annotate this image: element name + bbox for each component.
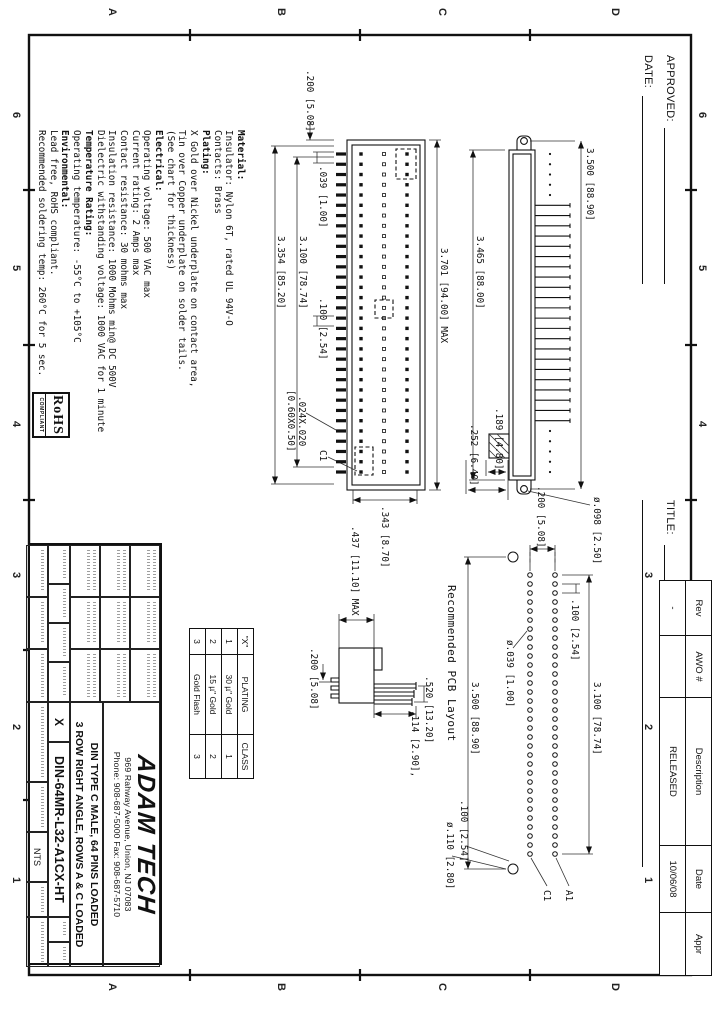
- tolerance-cell: [100, 545, 130, 597]
- pin-row-c: [359, 450, 362, 453]
- pin-row-a: [405, 347, 408, 350]
- spec-note-line: Tin over Copper underplate on solder tai…: [176, 130, 188, 450]
- pin-row-b-unloaded: [383, 450, 386, 453]
- pin-row-a: [405, 378, 408, 381]
- pin-row-b-unloaded: [383, 286, 386, 289]
- pcb-hole-row-c: [528, 735, 533, 740]
- illegible-text: [87, 550, 90, 592]
- tolerance-cell: [130, 597, 160, 649]
- scanned-drawing-page: 3.500 [88.90]3.465 [88.00].189 [4.80].25…: [0, 0, 720, 1012]
- tail-dot: [549, 430, 551, 432]
- dim-label: .343 [8.70]: [379, 506, 390, 568]
- illegible-text: [63, 922, 66, 937]
- pin-row-a: [405, 286, 408, 289]
- solder-tail: [336, 224, 346, 227]
- solder-tail: [336, 358, 346, 361]
- solder-tail: [336, 173, 346, 176]
- pin-row-c: [359, 368, 362, 371]
- dim-label: .437 [11.10] MAX: [349, 526, 360, 616]
- illegible-text: [63, 589, 66, 618]
- zone-label: B: [275, 983, 287, 991]
- zone-label: A: [106, 8, 118, 16]
- pcb-hole-row-a: [553, 798, 558, 803]
- company-phone: Phone: 908-687-5000 Fax: 908-687-5710: [112, 703, 123, 966]
- pin-row-a: [405, 214, 408, 217]
- pcb-hole-row-a: [553, 645, 558, 650]
- solder-tail: [336, 470, 346, 473]
- pcb-hole-row-a: [553, 726, 558, 731]
- pcb-hole-row-a: [553, 825, 558, 830]
- pin-row-a: [405, 265, 408, 268]
- title-line-2: [642, 500, 643, 867]
- tolerance-cell: [70, 597, 100, 649]
- pcb-hole-row-c: [528, 753, 533, 758]
- pcb-hole-row-c: [528, 573, 533, 578]
- pcb-hole-row-c: [528, 825, 533, 830]
- pin-row-a: [405, 419, 408, 422]
- pcb-hole-row-a: [553, 663, 558, 668]
- pcb-hole-row-a: [553, 816, 558, 821]
- small-cell: [26, 782, 48, 832]
- pcb-hole-row-c: [528, 771, 533, 776]
- pin-row-c: [359, 152, 362, 155]
- table-cell: -: [660, 581, 686, 636]
- sign-cell: [48, 545, 70, 584]
- revision-table: RevAWO #DescriptionDateAppr-RELEASED10/0…: [659, 580, 712, 976]
- pcb-layout-caption: Recommended PCB Layout: [445, 585, 458, 742]
- description-cell: DIN TYPE C MALE, 64 PINS LOADED 3 ROW RI…: [70, 702, 103, 967]
- illegible-text: [93, 602, 96, 644]
- dim-label: .252 [6.40]: [468, 424, 479, 486]
- zone-label: 3: [642, 572, 654, 578]
- pin-row-c: [359, 255, 362, 258]
- tail-dot: [549, 450, 551, 452]
- table-header-cell: CLASS: [238, 735, 254, 779]
- zone-label: 4: [696, 421, 708, 427]
- tail-dot: [549, 153, 551, 155]
- dim-label: 3.500 [88.90]: [469, 682, 480, 755]
- illegible-text: [117, 602, 120, 644]
- rohs-compliant-logo: RoHS COMPLIANT: [32, 392, 70, 438]
- dim-label: [0.60X0.50]: [285, 390, 296, 452]
- pin-row-c: [359, 429, 362, 432]
- table-header-cell: PLATING: [238, 655, 254, 735]
- pcb-hole-row-a: [553, 753, 558, 758]
- pin-row-b-unloaded: [383, 235, 386, 238]
- table-cell: Gold Flash: [190, 655, 206, 735]
- tail-dot: [549, 173, 551, 175]
- solder-tail: [336, 183, 346, 186]
- pin-row-a: [405, 275, 408, 278]
- illegible-text: [153, 602, 156, 644]
- table-cell: 1: [222, 735, 238, 779]
- spec-note-line: Dielectric withstanding voltage: 1000 VA…: [94, 130, 106, 450]
- sign-cell: [26, 597, 48, 649]
- pin-row-b-unloaded: [383, 245, 386, 248]
- pcb-hole-row-a: [553, 852, 558, 857]
- pin-row-b-unloaded: [383, 153, 386, 156]
- table-cell: 3: [190, 629, 206, 655]
- pin-row-c: [359, 357, 362, 360]
- rohs-title: RoHS: [46, 394, 68, 436]
- illegible-text: [87, 602, 90, 644]
- pcb-hole-row-c: [528, 780, 533, 785]
- pin-row-c: [359, 296, 362, 299]
- zone-label: 6: [696, 112, 708, 118]
- illegible-text: [41, 654, 44, 697]
- pcb-hole-row-a: [553, 672, 558, 677]
- illegible-text: [63, 628, 66, 657]
- pcb-hole-row-a: [553, 771, 558, 776]
- pin-row-a: [405, 316, 408, 319]
- pin-row-b-unloaded: [383, 204, 386, 207]
- date-label: DATE:: [642, 55, 654, 88]
- pcb-hole-row-a: [553, 609, 558, 614]
- pin-row-c: [359, 398, 362, 401]
- pin-row-a: [405, 173, 408, 176]
- dim-label: .520 [13.20]: [423, 676, 434, 743]
- table-cell: 10/06/08: [660, 846, 686, 913]
- zone-label: D: [609, 8, 621, 16]
- dim-label: .100 [2.54]: [458, 800, 469, 862]
- pcb-hole-row-a: [553, 654, 558, 659]
- spec-note-line: Insulator: Nylon 6T, rated UL 94V-O: [223, 130, 235, 450]
- dim-label: 3.100 [78.74]: [297, 236, 308, 309]
- pcb-hole-row-a: [553, 735, 558, 740]
- illegible-text: [147, 550, 150, 592]
- spec-note-line: Current rating: 2 Amps max: [129, 130, 141, 450]
- pcb-hole-row-c: [528, 636, 533, 641]
- pin-row-b-unloaded: [383, 388, 386, 391]
- plating-chart: "X"PLATINGCLASS130 µ" Gold1215 µ" Gold23…: [189, 628, 254, 779]
- plating-code-cell: X: [48, 702, 70, 742]
- pin-row-c: [359, 409, 362, 412]
- pin-row-c: [359, 460, 362, 463]
- pcb-hole-row-c: [528, 744, 533, 749]
- pin-row-b-unloaded: [383, 419, 386, 422]
- illegible-text: [117, 654, 120, 697]
- pin-row-b-unloaded: [383, 409, 386, 412]
- view-front: [271, 121, 441, 504]
- pcb-hole-row-c: [528, 726, 533, 731]
- title-block: ADAM TECH 969 Rahway Avenue, Union, NJ 0…: [28, 543, 162, 965]
- solder-tail: [336, 419, 346, 422]
- pin-row-c: [359, 193, 362, 196]
- spec-note-line: Operating voltage: 500 VAC max: [141, 130, 153, 450]
- tolerance-cell: [70, 545, 100, 597]
- dim-label: .100 [2.54]: [569, 599, 580, 661]
- pin-row-b-unloaded: [383, 224, 386, 227]
- pin-row-b-unloaded: [383, 378, 386, 381]
- pin-row-c: [359, 224, 362, 227]
- pcb-hole-row-c: [528, 591, 533, 596]
- pin-row-c: [359, 214, 362, 217]
- pin-row-b-unloaded: [383, 296, 386, 299]
- dim-label: .039 [1.00]: [317, 166, 328, 228]
- zone-label: 2: [10, 724, 22, 730]
- solder-tail: [336, 234, 346, 237]
- solder-tail: [336, 255, 346, 258]
- tail-dot: [549, 163, 551, 165]
- pin-row-a: [405, 357, 408, 360]
- pin-row-c: [359, 419, 362, 422]
- dim-label: 3.100 [78.74]: [591, 682, 602, 755]
- table-header-cell: "X": [238, 629, 254, 655]
- pcb-hole-row-c: [528, 798, 533, 803]
- pcb-hole-row-c: [528, 609, 533, 614]
- pcb-hole-row-a: [553, 699, 558, 704]
- solder-tail: [336, 296, 346, 299]
- tail-dot: [549, 461, 551, 463]
- solder-tail: [336, 450, 346, 453]
- solder-tail: [336, 378, 346, 381]
- pcb-hole-row-a: [553, 789, 558, 794]
- pcb-hole-row-a: [553, 681, 558, 686]
- pcb-hole-row-c: [528, 582, 533, 587]
- solder-tail: [336, 388, 346, 391]
- illegible-text: [123, 550, 126, 592]
- pin-row-c: [359, 286, 362, 289]
- pcb-hole-row-a: [553, 582, 558, 587]
- solder-tail: [336, 409, 346, 412]
- illegible-text: [117, 550, 120, 592]
- table-cell: 2: [206, 735, 222, 779]
- pin-row-c: [359, 265, 362, 268]
- dim-label: ø.110 [2.80]: [444, 822, 455, 889]
- pin-row-b-unloaded: [383, 214, 386, 217]
- pin-row-a: [405, 450, 408, 453]
- illegible-text: [41, 550, 44, 592]
- small-cell: [48, 917, 70, 942]
- illegible-text: [63, 947, 66, 962]
- illegible-text: [153, 654, 156, 697]
- small-cell: [26, 882, 48, 917]
- solder-tail: [336, 440, 346, 443]
- table-header-cell: Description: [686, 698, 712, 846]
- dim-label: .200 [5.08]: [535, 486, 546, 548]
- illegible-text: [63, 667, 66, 697]
- pin-row-a: [405, 388, 408, 391]
- zone-label: 5: [696, 265, 708, 271]
- spec-note-line: Contacts: Brass: [211, 130, 223, 450]
- small-cell: [48, 942, 70, 967]
- zone-label: 1: [10, 877, 22, 883]
- pin-row-c: [359, 173, 362, 176]
- pcb-hole-row-a: [553, 843, 558, 848]
- table-header-cell: Date: [686, 846, 712, 913]
- pin-row-c: [359, 470, 362, 473]
- solder-tail: [336, 327, 346, 330]
- pcb-hole-row-c: [528, 717, 533, 722]
- dim-label: ø.098 [2.50]: [591, 497, 602, 564]
- small-cell: [26, 702, 48, 782]
- solder-tail: [336, 275, 346, 278]
- pin-row-a: [405, 152, 408, 155]
- tail-dot: [549, 194, 551, 196]
- pin-row-b-unloaded: [383, 183, 386, 186]
- pin-row-a: [405, 409, 408, 412]
- illegible-text: [93, 550, 96, 592]
- solder-tail: [336, 429, 346, 432]
- table-cell: 2: [206, 629, 222, 655]
- pcb-hole-row-a: [553, 618, 558, 623]
- solder-tail: [336, 152, 346, 155]
- dim-label: .114 [2.90],: [409, 710, 420, 777]
- pin-row-b-unloaded: [383, 265, 386, 268]
- dim-label: 3.465 [88.00]: [474, 236, 485, 309]
- pin-row-c: [359, 183, 362, 186]
- pin-row-c: [359, 163, 362, 166]
- small-cell: [26, 917, 48, 967]
- pcb-hole-row-c: [528, 672, 533, 677]
- illegible-text: [123, 602, 126, 644]
- pin-row-b-unloaded: [383, 327, 386, 330]
- pcb-hole-row-c: [528, 681, 533, 686]
- rohs-subtitle: COMPLIANT: [36, 394, 46, 436]
- dim-label: 3.500 [88.90]: [584, 148, 595, 221]
- pin-row-b-unloaded: [383, 173, 386, 176]
- pin-row-c: [359, 388, 362, 391]
- table-cell: 3: [190, 735, 206, 779]
- dim-label: .024X.020: [296, 396, 307, 446]
- tail-dot: [549, 440, 551, 442]
- pcb-hole-row-c: [528, 852, 533, 857]
- pin-row-a: [405, 337, 408, 340]
- pin-row-b-unloaded: [383, 255, 386, 258]
- tail-dot: [549, 184, 551, 186]
- illegible-text: [63, 550, 66, 579]
- pin-row-a: [405, 183, 408, 186]
- zone-label: 1: [642, 877, 654, 883]
- tolerance-cell: [100, 597, 130, 649]
- pin-row-b-unloaded: [383, 163, 386, 166]
- pcb-hole-row-c: [528, 708, 533, 713]
- mounting-ear-hole: [521, 486, 528, 493]
- tolerance-cell: [70, 649, 100, 702]
- table-cell: 15 µ" Gold: [206, 655, 222, 735]
- zone-label: B: [275, 8, 287, 16]
- spec-note-line: Material:: [234, 130, 246, 450]
- tolerance-cell: [100, 649, 130, 702]
- part-number: DIN-64MR-L32-A1CX-HT: [48, 742, 70, 917]
- spec-note-line: X Gold over Nickel underplate on contact…: [187, 130, 199, 450]
- pin-row-b-unloaded: [383, 347, 386, 350]
- tail-dot: [549, 471, 551, 473]
- solder-tail: [336, 306, 346, 309]
- spec-note-line: Operating temperature: -55°C to +105°C: [70, 130, 82, 450]
- pin-row-c: [359, 440, 362, 443]
- pcb-hole-row-a: [553, 636, 558, 641]
- dim-label: C1: [541, 890, 552, 901]
- spec-note-line: Plating:: [199, 130, 211, 450]
- pcb-hole-row-c: [528, 816, 533, 821]
- table-header-cell: Rev: [686, 581, 712, 636]
- pcb-hole-row-a: [553, 762, 558, 767]
- pin-row-c: [359, 378, 362, 381]
- table-header-cell: Appr: [686, 913, 712, 976]
- illegible-text: [41, 707, 44, 777]
- solder-tail: [336, 204, 346, 207]
- sign-cell: [48, 662, 70, 702]
- pin-row-c: [359, 327, 362, 330]
- mounting-ear-hole: [521, 138, 528, 145]
- pin-row-c: [359, 306, 362, 309]
- pin-row-c: [359, 245, 362, 248]
- illegible-text: [147, 654, 150, 697]
- illegible-text: [41, 602, 44, 644]
- solder-tail: [336, 163, 346, 166]
- pin-row-b-unloaded: [383, 358, 386, 361]
- dim-label: .200 [5.08]: [308, 648, 319, 710]
- dim-label: .189 [4.80]: [493, 408, 504, 470]
- pin-row-a: [405, 224, 408, 227]
- sign-cell: [26, 545, 48, 597]
- spec-note-line: (See chart for thickness): [164, 130, 176, 450]
- table-cell: 30 µ" Gold: [222, 655, 238, 735]
- company-cell: ADAM TECH 969 Rahway Avenue, Union, NJ 0…: [103, 702, 160, 967]
- dim-label: .200 [5.08]: [304, 70, 315, 132]
- drawing-sheet-landscape: 3.500 [88.90]3.465 [88.00].189 [4.80].25…: [0, 0, 720, 1012]
- zone-label: A: [106, 983, 118, 991]
- scale-cell: NTS: [26, 832, 48, 882]
- title-label: TITLE:: [664, 500, 676, 535]
- pcb-hole-row-a: [553, 780, 558, 785]
- pin-row-b-unloaded: [383, 306, 386, 309]
- tolerance-cell: [130, 649, 160, 702]
- solder-tail: [336, 193, 346, 196]
- zone-label: 4: [10, 421, 22, 427]
- solder-tail: [336, 460, 346, 463]
- pin-row-b-unloaded: [383, 440, 386, 443]
- pin-row-c: [359, 275, 362, 278]
- zone-label: C: [436, 8, 448, 16]
- solder-tail: [336, 347, 346, 350]
- dim-label: C1: [317, 450, 328, 461]
- pin-row-b-unloaded: [383, 399, 386, 402]
- illegible-text: [87, 654, 90, 697]
- pcb-hole-row-c: [528, 654, 533, 659]
- pin-row-b-unloaded: [383, 194, 386, 197]
- pin-row-c: [359, 234, 362, 237]
- pin-row-a: [405, 234, 408, 237]
- pin-row-a: [405, 245, 408, 248]
- pin-row-c: [359, 337, 362, 340]
- zone-label: D: [609, 983, 621, 991]
- solder-tail: [336, 214, 346, 217]
- sign-cell: [48, 584, 70, 623]
- pin-row-a: [405, 296, 408, 299]
- illegible-text: [41, 887, 44, 912]
- pin-row-a: [405, 193, 408, 196]
- view-top: [466, 136, 590, 505]
- pcb-hole-row-a: [553, 573, 558, 578]
- table-cell: RELEASED: [660, 698, 686, 846]
- approved-line: [664, 128, 665, 284]
- pcb-hole-row-c: [528, 807, 533, 812]
- pcb-hole-row-c: [528, 762, 533, 767]
- pcb-hole-row-a: [553, 627, 558, 632]
- pcb-hole-row-a: [553, 591, 558, 596]
- sign-cell: [26, 649, 48, 702]
- pin-row-c: [359, 204, 362, 207]
- pcb-hole-row-a: [553, 600, 558, 605]
- zone-label: 5: [10, 265, 22, 271]
- solder-tail: [336, 368, 346, 371]
- zone-label: 2: [642, 724, 654, 730]
- pin-row-a: [405, 306, 408, 309]
- polarization-detail: [355, 447, 373, 475]
- tolerance-cell: [130, 545, 160, 597]
